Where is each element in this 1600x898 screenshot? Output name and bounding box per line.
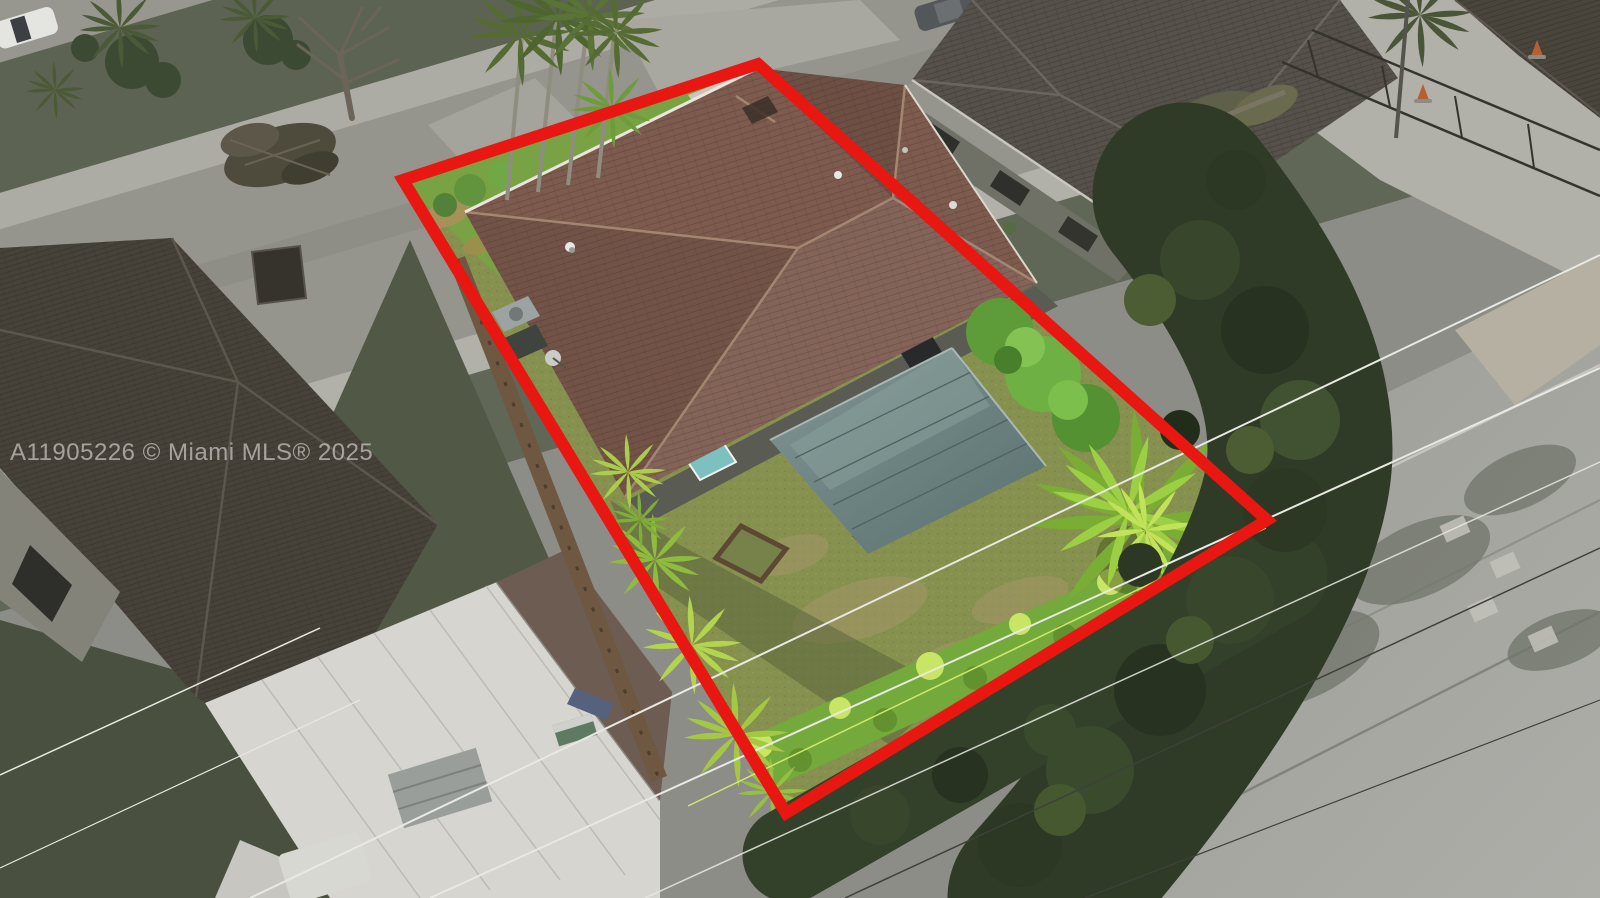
aerial-property-photo: A11905226 © Miami MLS® 2025 — [0, 0, 1600, 898]
chimney — [252, 246, 306, 304]
mls-watermark: A11905226 © Miami MLS® 2025 — [10, 439, 373, 466]
aerial-photo-canvas: A11905226 © Miami MLS® 2025 — [0, 0, 1600, 898]
